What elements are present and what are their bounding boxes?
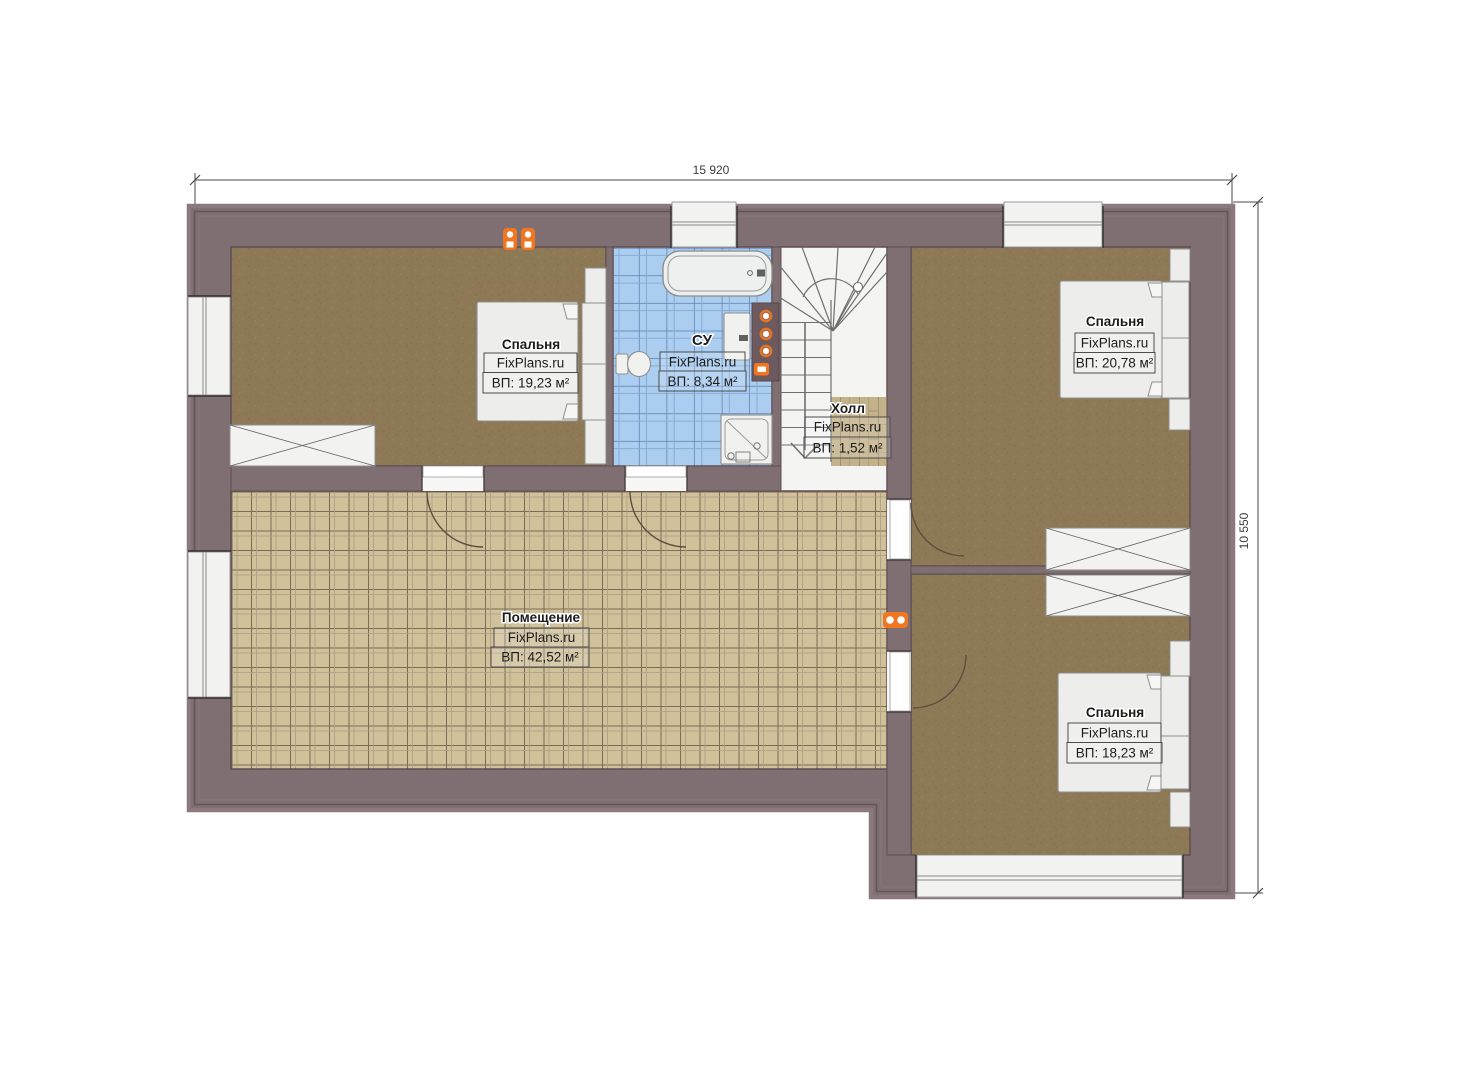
svg-text:FixPlans.ru: FixPlans.ru xyxy=(508,630,576,645)
svg-text:ВП: 42,52 м²: ВП: 42,52 м² xyxy=(501,650,579,665)
svg-text:10 550: 10 550 xyxy=(1237,512,1251,549)
svg-text:ВП: 18,23 м²: ВП: 18,23 м² xyxy=(1076,746,1154,761)
svg-text:15 920: 15 920 xyxy=(693,163,730,177)
svg-text:Спальня: Спальня xyxy=(502,337,560,352)
svg-text:СУ: СУ xyxy=(692,332,713,349)
svg-text:ВП: 1,52 м²: ВП: 1,52 м² xyxy=(812,441,883,456)
svg-text:ВП: 20,78 м²: ВП: 20,78 м² xyxy=(1076,356,1154,371)
svg-text:FixPlans.ru: FixPlans.ru xyxy=(669,355,737,370)
svg-text:FixPlans.ru: FixPlans.ru xyxy=(1081,336,1149,351)
svg-text:FixPlans.ru: FixPlans.ru xyxy=(814,420,882,435)
svg-text:Спальня: Спальня xyxy=(1086,705,1144,720)
svg-text:Спальня: Спальня xyxy=(1086,314,1144,329)
svg-text:FixPlans.ru: FixPlans.ru xyxy=(497,356,565,371)
svg-text:Помещение: Помещение xyxy=(502,610,581,625)
svg-text:ВП: 19,23 м²: ВП: 19,23 м² xyxy=(492,376,570,391)
svg-text:Холл: Холл xyxy=(831,401,865,416)
svg-text:FixPlans.ru: FixPlans.ru xyxy=(1081,726,1149,741)
svg-text:ВП: 8,34 м²: ВП: 8,34 м² xyxy=(667,374,738,389)
